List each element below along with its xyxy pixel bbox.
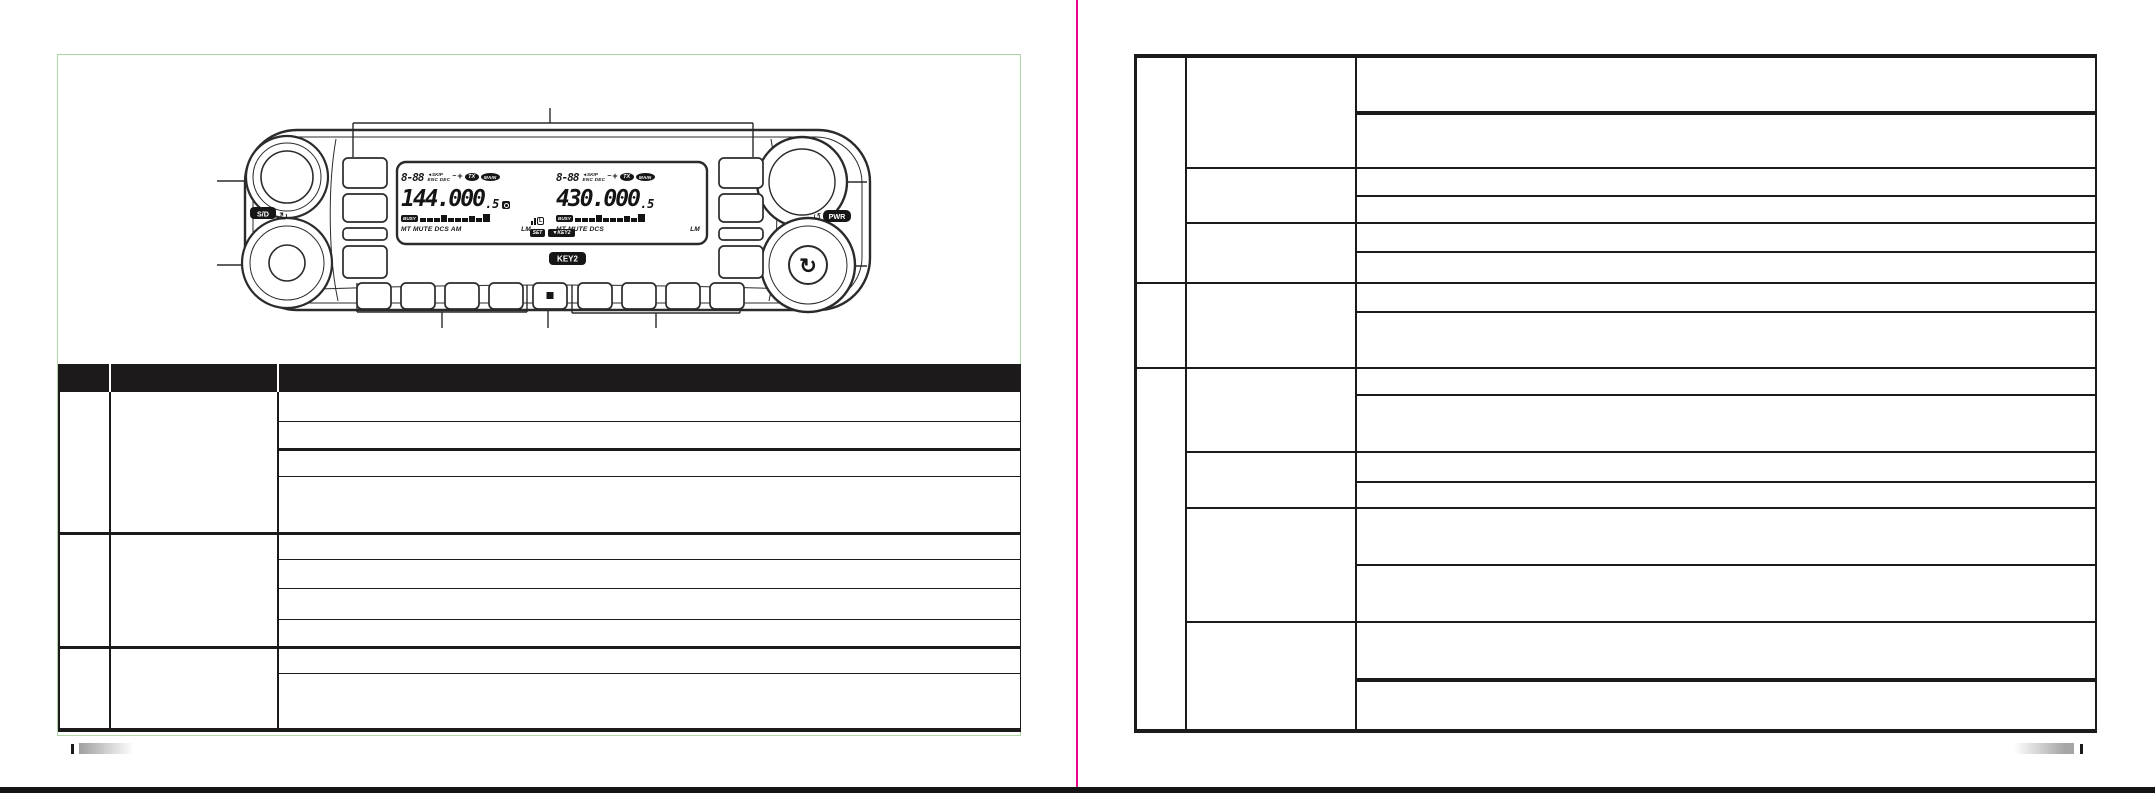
- right-dec-flag: DEC: [595, 177, 606, 182]
- table-border-left: [1134, 54, 1137, 733]
- pwr-rotate-arrow-icon: ↺: [813, 212, 821, 223]
- sub-row-line: [1356, 251, 2097, 253]
- left-shift-plus: +: [457, 171, 462, 181]
- left-shift-minus: −: [452, 173, 456, 180]
- lcd-right-status-row: 8-88 ◄SKIP ENC DEC −+ TX MAIN: [556, 170, 702, 184]
- row-line: [1185, 621, 2097, 623]
- lcd-left-frequency-row: 144.000 .5: [401, 184, 547, 211]
- vkey2-badge: ▼KEY2: [548, 229, 575, 237]
- lcd-right-label-row: MT MUTE DCS LM: [556, 224, 702, 234]
- col2-divider: [277, 392, 279, 732]
- power-rotate-icon: ↻: [799, 255, 817, 278]
- sub-row-line: [1356, 195, 2097, 197]
- col1-divider: [1185, 54, 1187, 733]
- sub-row-line: [279, 588, 1021, 589]
- left-memory-channel: 8-88: [401, 171, 424, 184]
- left-dec-flag: DEC: [440, 177, 451, 182]
- lcd-left-band: 8-88 ◄SKIP ENC DEC −+ TX MAIN 144.000 .5…: [401, 170, 547, 242]
- left-frequency-sub-digit: .5: [485, 198, 499, 211]
- lcd-left-status-row: 8-88 ◄SKIP ENC DEC −+ TX MAIN: [401, 170, 547, 184]
- bottom-key-6: [578, 283, 612, 309]
- bottom-key-9: [710, 283, 744, 309]
- row-line: [1185, 507, 2097, 509]
- bottom-key-8: [666, 283, 700, 309]
- row-line: [1185, 167, 2097, 169]
- right-key-column: [719, 158, 763, 278]
- sub-row-line-bold: [1356, 678, 2097, 682]
- sub-row-line: [279, 619, 1021, 620]
- row-line: [1185, 222, 2097, 224]
- left-tx-badge: TX: [465, 173, 479, 181]
- group-divider: [1134, 282, 2097, 284]
- col1-divider: [109, 392, 111, 732]
- right-frequency: 430.000: [556, 187, 639, 211]
- left-status-labels: MT MUTE DCS AM: [401, 226, 461, 233]
- left-key-1: [343, 158, 387, 188]
- left-key-3: [343, 228, 387, 240]
- right-key-3: [719, 228, 763, 240]
- right-memory-channel: 8-88: [556, 171, 579, 184]
- sub-row-line: [1356, 311, 2097, 313]
- page-separator-line: [1076, 0, 1078, 788]
- sd-rotate-arrow-icon: ↻: [279, 211, 288, 223]
- left-enc-flag: ENC: [428, 177, 439, 182]
- right-busy-badge: BUSY: [556, 215, 573, 222]
- header-col-separator: [277, 364, 279, 392]
- lcd-right-band: 8-88 ◄SKIP ENC DEC −+ TX MAIN 430.000 .5…: [556, 170, 702, 242]
- right-key-1: [719, 158, 763, 188]
- sub-row-line-bold: [1356, 111, 2097, 115]
- table-border-bottom: [1134, 729, 2097, 734]
- bottom-key-1: [357, 283, 391, 309]
- lcd-left-meter-row: BUSY: [401, 212, 547, 224]
- right-tx-badge: TX: [620, 173, 634, 181]
- lock-label: L: [537, 217, 544, 225]
- left-frequency: 144.000: [401, 187, 484, 211]
- bottom-key-7: [622, 283, 656, 309]
- right-page-number-area: [2014, 743, 2074, 754]
- right-key-2: [719, 194, 763, 222]
- sub-row-line: [1356, 394, 2097, 396]
- row-line: [1185, 451, 2097, 453]
- set-badge: SET: [530, 229, 545, 237]
- right-lm-label: LM: [690, 226, 700, 233]
- left-footer-tick: [71, 744, 74, 754]
- left-busy-badge: BUSY: [401, 215, 418, 222]
- group-divider: [58, 646, 1021, 649]
- lcd-left-label-row: MT MUTE DCS AM LM: [401, 224, 547, 234]
- right-key-4: [719, 246, 763, 278]
- bottom-key-2: [401, 283, 435, 309]
- right-shift-minus: −: [607, 173, 611, 180]
- sd-knob-label: S/D: [257, 210, 269, 219]
- group-divider: [58, 532, 1021, 535]
- right-frequency-sub-digit: .5: [640, 198, 654, 211]
- left-signal-meter: [420, 214, 490, 222]
- bottom-key-4: [489, 283, 523, 309]
- key2-button-label: KEY2: [557, 255, 578, 264]
- center-key-dot: [547, 292, 554, 299]
- table-border-bottom: [58, 728, 1021, 732]
- right-footer-tick: [2080, 744, 2083, 754]
- sub-row-line: [1356, 481, 2097, 483]
- header-col-separator: [109, 364, 111, 392]
- right-signal-meter: [575, 214, 645, 222]
- lcd-right-frequency-row: 430.000 .5: [556, 184, 702, 211]
- left-key-4: [343, 246, 387, 278]
- left-reference-table: [58, 364, 1021, 732]
- group-divider: [1134, 367, 2097, 369]
- table-border-top: [1134, 54, 2097, 58]
- table-border-left: [58, 392, 60, 732]
- right-shift-plus: +: [612, 171, 617, 181]
- sub-row-line-bold: [279, 448, 1021, 451]
- lcd-right-meter-row: BUSY: [556, 212, 702, 224]
- sub-row-line: [279, 559, 1021, 560]
- lcd-display: 8-88 ◄SKIP ENC DEC −+ TX MAIN 144.000 .5…: [399, 170, 702, 242]
- right-main-badge: MAIN: [636, 173, 655, 181]
- right-reference-table: [1134, 54, 2097, 733]
- sub-row-line: [279, 421, 1021, 422]
- left-page-number-area: [79, 743, 141, 754]
- table-border-right: [1020, 392, 1022, 732]
- sub-row-line: [279, 476, 1021, 477]
- sub-row-line: [279, 673, 1021, 674]
- signal-lock-icon: L: [531, 216, 544, 225]
- left-key-column: [343, 158, 387, 278]
- left-table-header-bar: [58, 364, 1021, 392]
- bottom-rule: [0, 787, 2155, 793]
- right-enc-flag: ENC: [583, 177, 594, 182]
- bottom-key-3: [445, 283, 479, 309]
- left-key-2: [343, 194, 387, 222]
- sub-row-line: [1356, 564, 2097, 566]
- left-main-badge: MAIN: [481, 173, 500, 181]
- pwr-knob-label: PWR: [829, 212, 847, 221]
- manual-page-spread: S/D ↻ ↻ ↺ PWR K: [0, 0, 2155, 793]
- clock-icon: [502, 201, 510, 209]
